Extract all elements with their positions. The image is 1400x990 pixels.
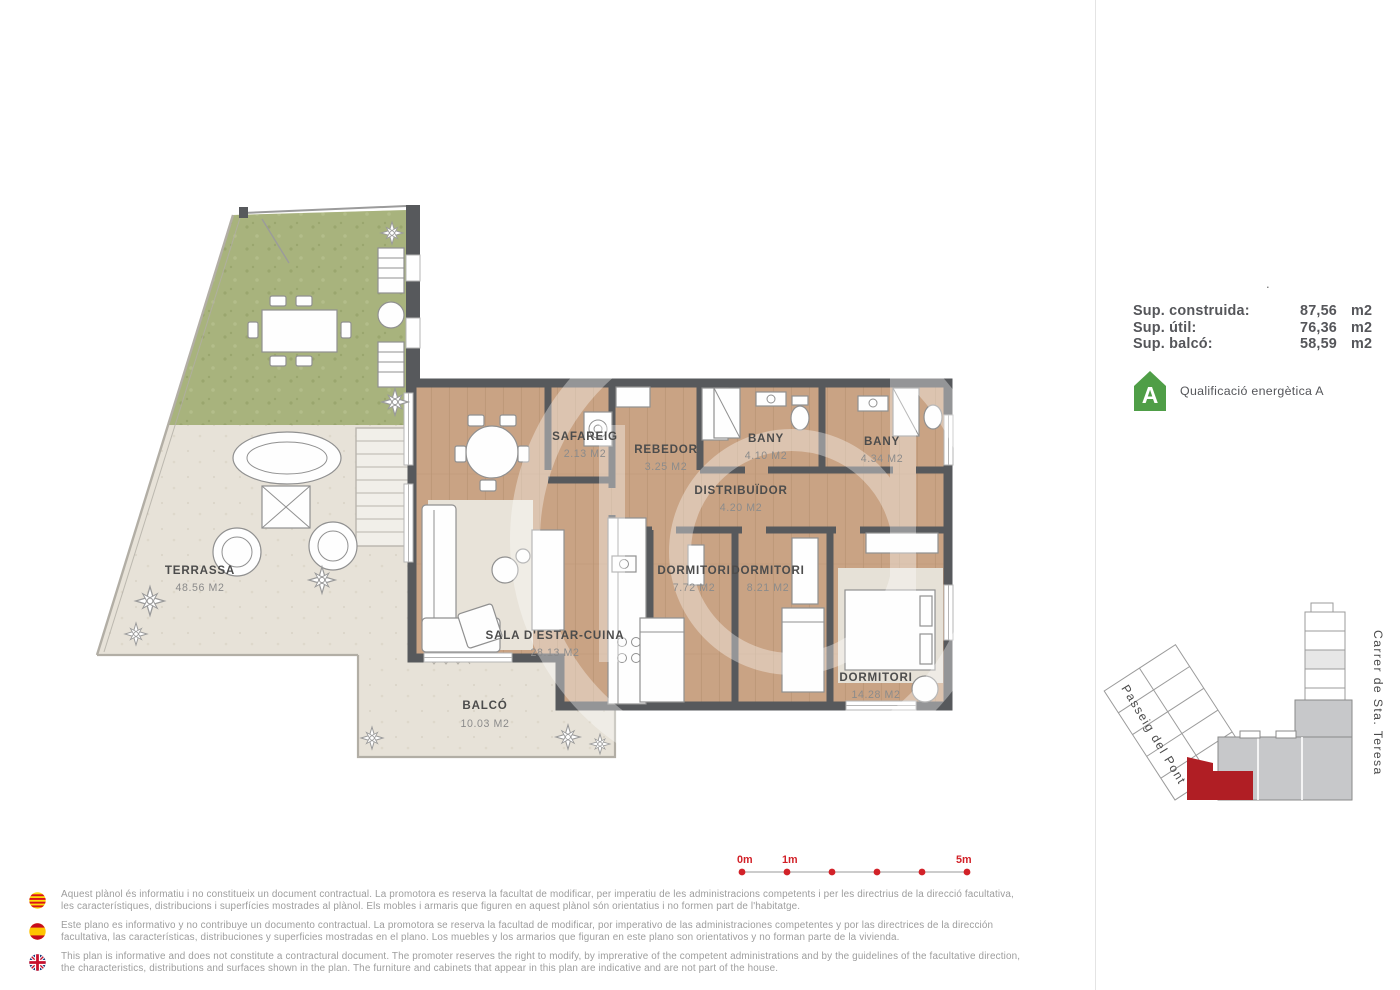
svg-text:A: A — [1142, 382, 1159, 408]
disclaimer-text-english: This plan is informative and does not co… — [61, 951, 1021, 976]
floor-plan-sheet: TERRASSA 48.56 M2 SAFAREIG 2.13 M2 REBED… — [0, 0, 1400, 990]
svg-text:TERRASSA: TERRASSA — [165, 564, 235, 577]
energy-rating-label: Qualificació energètica A — [1180, 384, 1324, 398]
surface-summary: Sup. construida: 87,56 m2 Sup. útil: 76,… — [1133, 303, 1372, 353]
scale-label-1m: 1m — [782, 854, 798, 866]
svg-text:REBEDOR: REBEDOR — [634, 443, 698, 456]
svg-text:4.34 M2: 4.34 M2 — [861, 453, 903, 465]
scale-label-5m: 5m — [956, 854, 972, 866]
hall-cabinet — [616, 387, 650, 407]
surface-unit: m2 — [1351, 320, 1372, 337]
energy-rating-icon: A — [1133, 370, 1167, 412]
svg-text:BANY: BANY — [864, 435, 900, 448]
surface-row-balco: Sup. balcó: 58,59 m2 — [1133, 336, 1372, 353]
disclaimer-spanish: Este plano es informativo y no contribuy… — [29, 920, 1021, 945]
svg-text:DORMITORI: DORMITORI — [657, 564, 730, 577]
svg-text:8.21 M2: 8.21 M2 — [747, 582, 789, 594]
svg-text:10.03 M2: 10.03 M2 — [461, 718, 510, 730]
svg-text:BANY: BANY — [748, 432, 784, 445]
svg-text:DORMITORI: DORMITORI — [839, 671, 912, 684]
svg-text:SALA D'ESTAR-CUINA: SALA D'ESTAR-CUINA — [486, 629, 625, 642]
street-label-right: Carrer de Sta. Teresa — [1371, 630, 1385, 776]
scale-label-0m: 0m — [737, 854, 753, 866]
surface-value: 87,56 — [1283, 303, 1337, 320]
svg-text:3.25 M2: 3.25 M2 — [645, 461, 687, 473]
svg-text:14.28 M2: 14.28 M2 — [852, 689, 901, 701]
svg-text:4.10 M2: 4.10 M2 — [745, 450, 787, 462]
energy-rating: A Qualificació energètica A — [1133, 370, 1324, 412]
surface-label: Sup. útil: — [1133, 320, 1283, 337]
surface-value: 76,36 — [1283, 320, 1337, 337]
vertical-divider — [1095, 0, 1096, 990]
svg-text:48.56 M2: 48.56 M2 — [176, 582, 225, 594]
surface-label: Sup. balcó: — [1133, 336, 1283, 353]
svg-text:28.13 M2: 28.13 M2 — [531, 647, 580, 659]
svg-text:2.13 M2: 2.13 M2 — [564, 448, 606, 460]
surface-unit: m2 — [1351, 336, 1372, 353]
floor-plan-graphic: TERRASSA 48.56 M2 SAFAREIG 2.13 M2 REBED… — [0, 0, 1400, 990]
disclaimer-text-spanish: Este plano es informativo y no contribuy… — [61, 920, 1021, 945]
stray-dot: . — [1266, 276, 1270, 291]
surface-row-util: Sup. útil: 76,36 m2 — [1133, 320, 1372, 337]
spain-flag-icon — [29, 923, 46, 940]
disclaimer-text-catalan: Aquest plànol és informatiu i no constit… — [61, 889, 1021, 914]
scale-bar: 0m 1m 5m — [737, 854, 972, 875]
uk-flag-icon — [29, 954, 46, 971]
site-map: Passeig del Pont Carrer de Sta. Teresa — [1104, 603, 1385, 800]
svg-text:7.72 M2: 7.72 M2 — [673, 582, 715, 594]
disclaimer-english: This plan is informative and does not co… — [29, 951, 1021, 976]
svg-text:BALCÓ: BALCÓ — [462, 699, 507, 712]
svg-text:SAFAREIG: SAFAREIG — [552, 430, 618, 443]
svg-text:DISTRIBUÏDOR: DISTRIBUÏDOR — [694, 484, 787, 497]
svg-text:4.20 M2: 4.20 M2 — [720, 502, 762, 514]
surface-label: Sup. construida: — [1133, 303, 1283, 320]
surface-value: 58,59 — [1283, 336, 1337, 353]
disclaimer-catalan: Aquest plànol és informatiu i no constit… — [29, 889, 1021, 914]
surface-unit: m2 — [1351, 303, 1372, 320]
catalonia-flag-icon — [29, 892, 46, 909]
svg-text:DORMITORI: DORMITORI — [731, 564, 804, 577]
surface-row-construida: Sup. construida: 87,56 m2 — [1133, 303, 1372, 320]
